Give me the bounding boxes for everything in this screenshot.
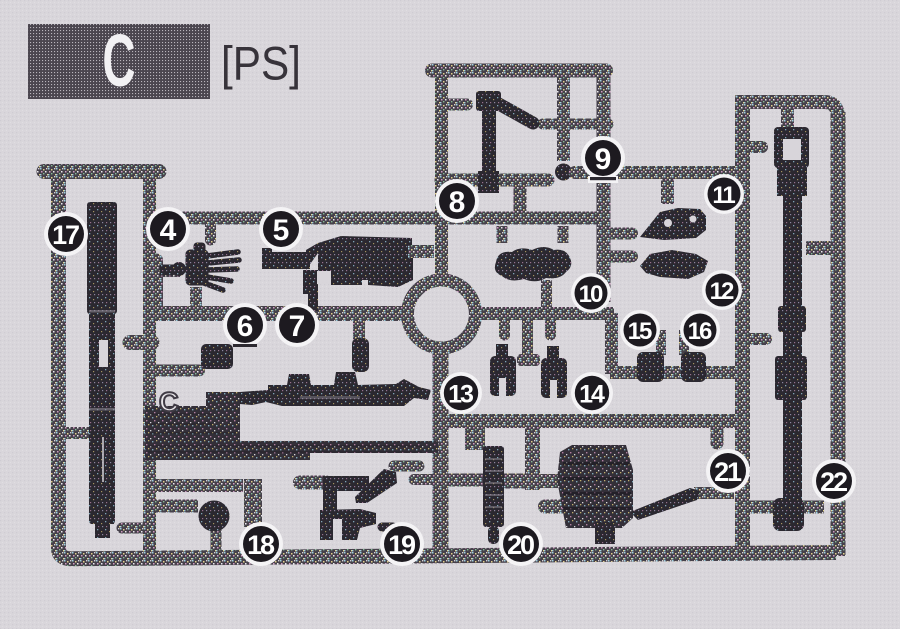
svg-text:5: 5 <box>273 214 290 247</box>
svg-text:15: 15 <box>628 318 652 345</box>
svg-text:12: 12 <box>710 278 734 305</box>
svg-text:17: 17 <box>52 220 79 250</box>
svg-text:11: 11 <box>712 182 735 209</box>
svg-text:C: C <box>159 387 179 417</box>
svg-text:20: 20 <box>507 530 534 560</box>
svg-text:8: 8 <box>449 186 466 219</box>
svg-text:4: 4 <box>160 214 177 247</box>
svg-text:10: 10 <box>579 281 603 308</box>
svg-text:6: 6 <box>237 310 254 343</box>
svg-text:13: 13 <box>448 381 473 409</box>
svg-text:21: 21 <box>714 457 742 487</box>
svg-text:22: 22 <box>820 467 847 497</box>
svg-text:[PS]: [PS] <box>221 39 301 91</box>
svg-text:7: 7 <box>289 310 306 343</box>
svg-text:14: 14 <box>579 381 605 409</box>
svg-text:19: 19 <box>388 530 416 560</box>
svg-text:C: C <box>102 20 135 103</box>
svg-text:18: 18 <box>247 530 275 560</box>
svg-text:16: 16 <box>688 318 712 345</box>
svg-text:9: 9 <box>595 143 612 176</box>
